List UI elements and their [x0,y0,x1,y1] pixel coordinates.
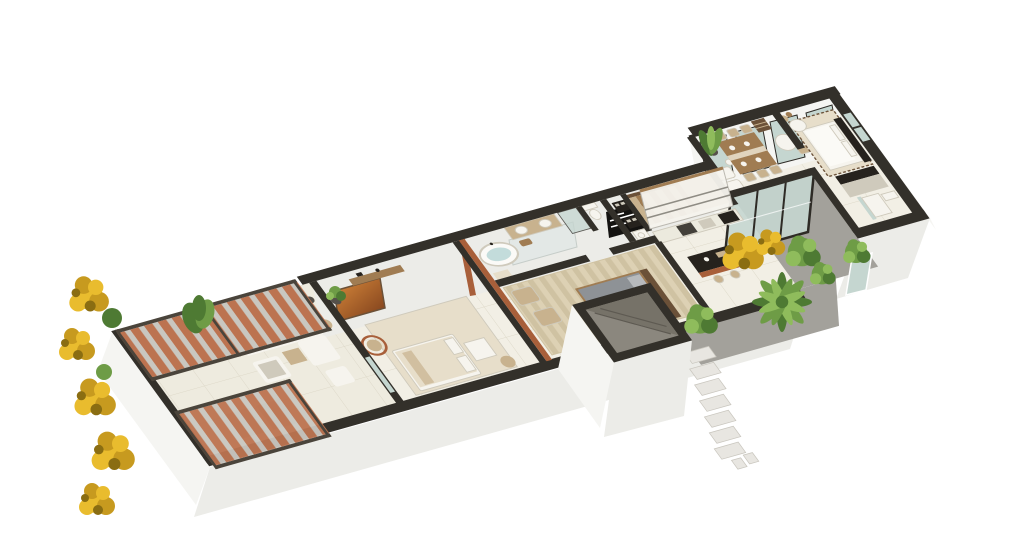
floorplan-svg [0,0,1024,548]
floorplan-render [0,0,1024,548]
